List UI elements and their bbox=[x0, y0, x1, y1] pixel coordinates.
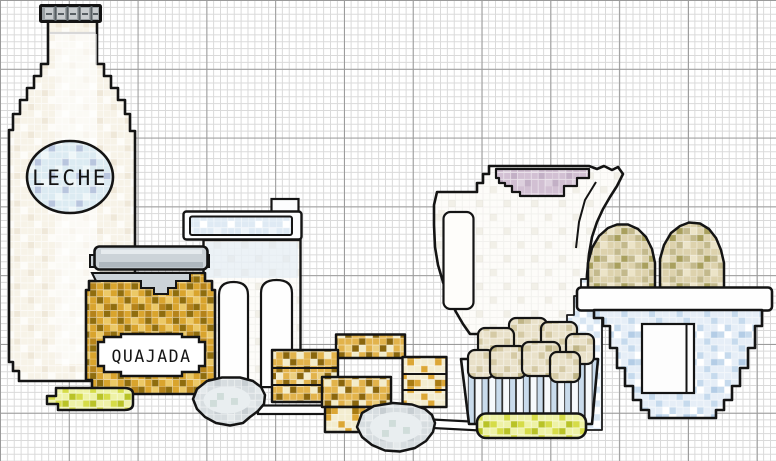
jar-lid-highlight bbox=[101, 250, 202, 255]
jar-lid-shadow bbox=[99, 262, 203, 268]
butter-stick bbox=[47, 388, 133, 410]
sugar-lumps bbox=[468, 318, 594, 382]
egg-left bbox=[588, 225, 655, 289]
milk-label-text: LECHE bbox=[32, 166, 108, 190]
cross-stitch-canvas: LECHE QUAJADA bbox=[0, 0, 776, 461]
pitcher-panel bbox=[444, 212, 474, 309]
biscuit-mid bbox=[322, 377, 391, 407]
egg-bowl bbox=[577, 288, 772, 419]
basket-base bbox=[477, 414, 586, 439]
pattern-art: LECHE QUAJADA bbox=[0, 0, 776, 461]
biscuit-top bbox=[336, 335, 405, 359]
tub-lid-inner bbox=[190, 217, 292, 236]
curd-jar: QUAJADA bbox=[86, 247, 215, 395]
egg-right bbox=[660, 223, 724, 289]
tub-top-tint bbox=[206, 242, 298, 278]
sugar-lump-basket bbox=[461, 318, 598, 438]
eggs bbox=[588, 223, 724, 289]
spoon-inner bbox=[370, 412, 422, 442]
jar-label-text: QUAJADA bbox=[111, 347, 191, 366]
tub-finger-left bbox=[219, 282, 248, 386]
biscuit-right-stack bbox=[403, 357, 447, 407]
bowl-rim bbox=[577, 288, 772, 311]
serving-spoon bbox=[357, 403, 480, 452]
